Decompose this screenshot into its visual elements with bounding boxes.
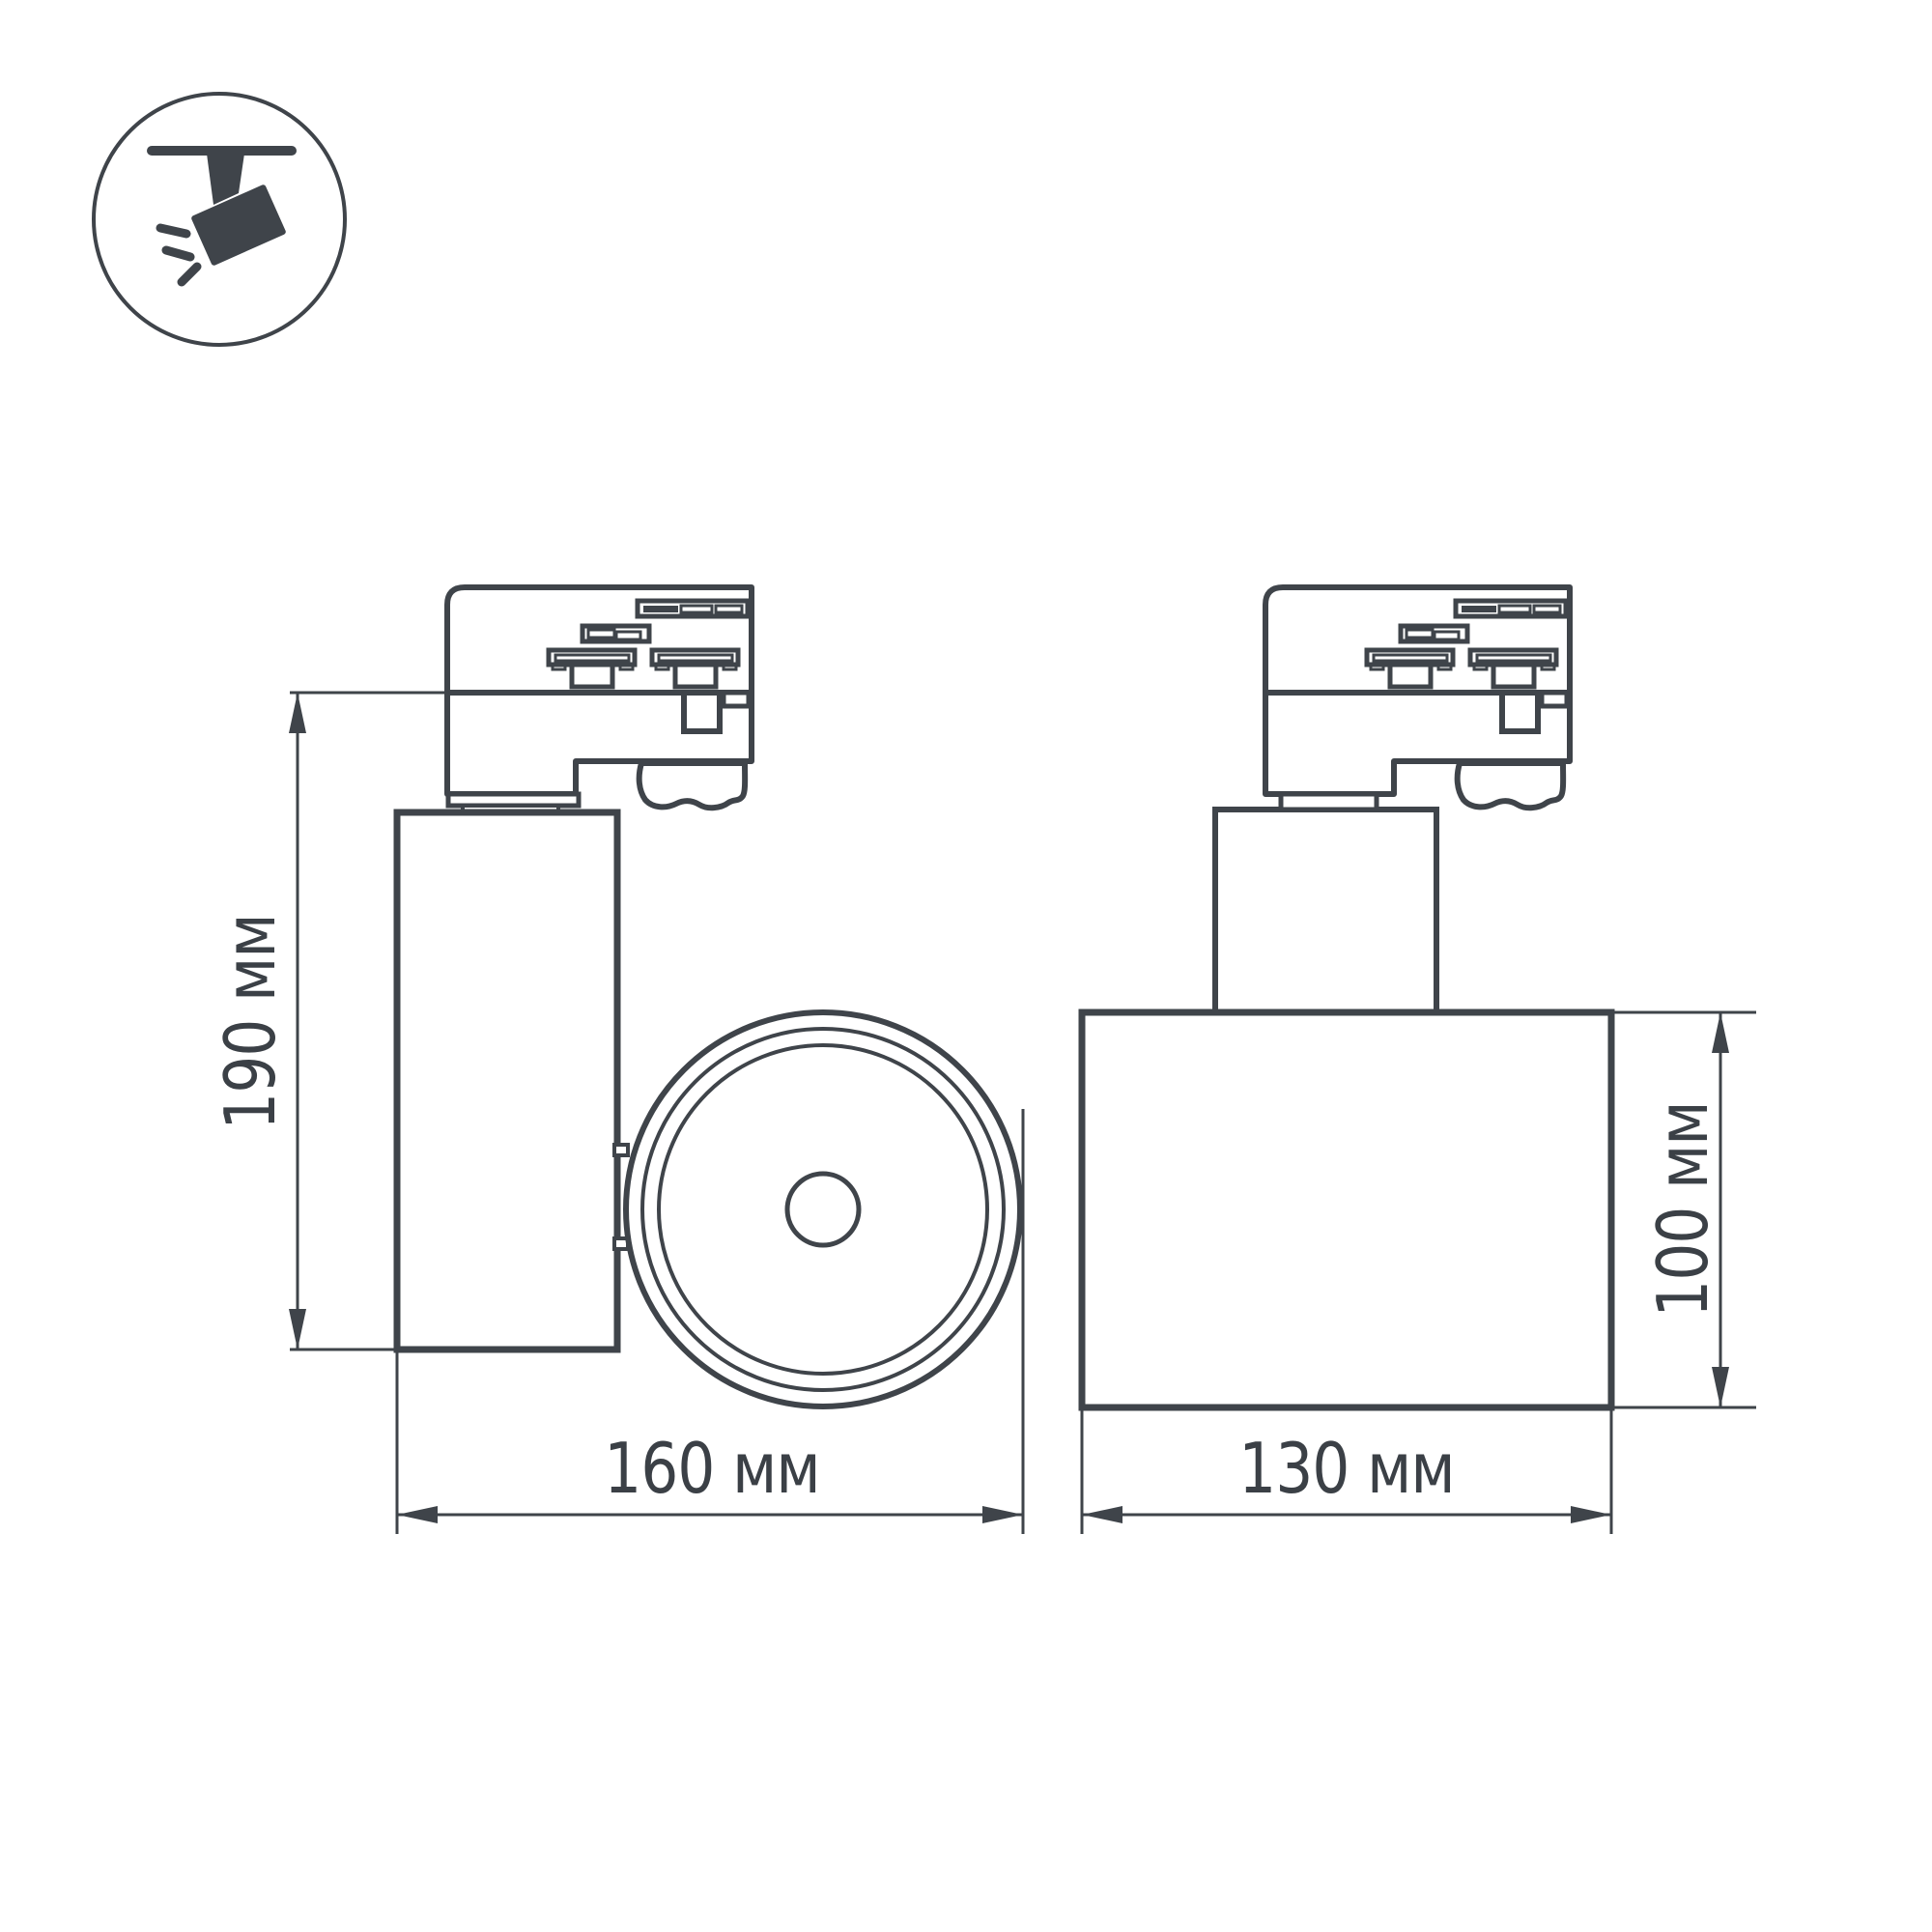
neck-column	[1215, 810, 1436, 1012]
arrowhead-up	[289, 693, 306, 733]
yoke-tab	[614, 1145, 628, 1155]
lamp-head-front	[626, 1012, 1020, 1406]
arrowhead-left	[1082, 1506, 1122, 1523]
fixture-front-view	[1082, 587, 1611, 1407]
arrowhead-down	[289, 1309, 306, 1350]
arrowhead-up	[1712, 1012, 1729, 1053]
track-spotlight-icon	[94, 94, 345, 345]
arrowhead-down	[1712, 1367, 1729, 1407]
dimension-label-width-160: 160 мм	[604, 1428, 820, 1509]
technical-drawing-page: 190 мм 160 мм 130 мм 100 мм	[0, 0, 1932, 1932]
lamp-barrel	[397, 812, 617, 1350]
fixture-side-view	[397, 587, 1020, 1406]
dimension-label-height-100: 100 мм	[1642, 1101, 1723, 1318]
arrowhead-right	[1571, 1506, 1611, 1523]
dimension-label-width-130: 130 мм	[1238, 1428, 1455, 1509]
arrowhead-left	[397, 1506, 438, 1523]
neck-plate	[1281, 794, 1377, 810]
dimension-label-height-190: 190 мм	[210, 914, 291, 1130]
lamp-body-front	[1082, 1012, 1611, 1407]
arrowhead-right	[982, 1506, 1023, 1523]
